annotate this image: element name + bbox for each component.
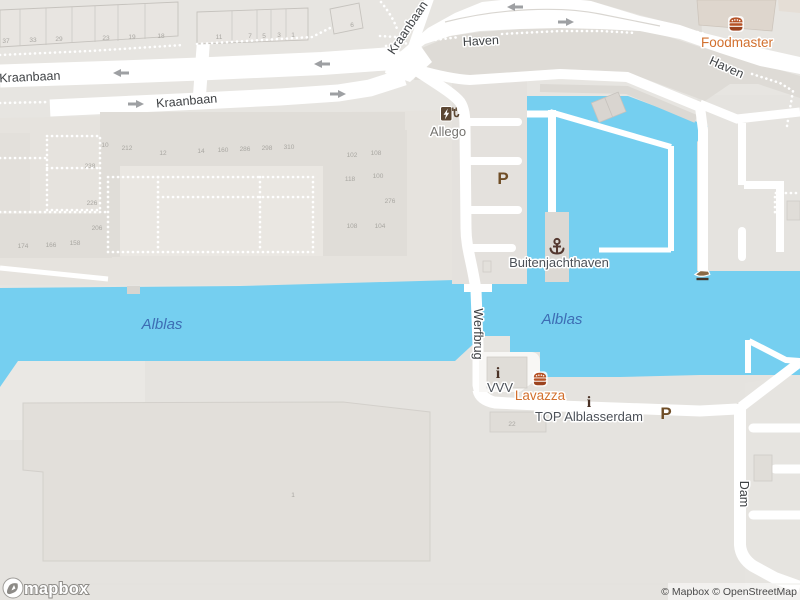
svg-text:206: 206 xyxy=(92,225,103,232)
svg-text:1: 1 xyxy=(291,492,295,499)
svg-text:37: 37 xyxy=(2,38,10,45)
svg-text:108: 108 xyxy=(371,150,382,157)
svg-text:12: 12 xyxy=(159,150,167,157)
svg-text:226: 226 xyxy=(87,200,98,207)
svg-text:160: 160 xyxy=(218,147,229,154)
svg-text:Allego: Allego xyxy=(430,124,466,139)
svg-text:Lavazza: Lavazza xyxy=(515,388,566,403)
svg-text:3: 3 xyxy=(277,32,281,39)
svg-text:29: 29 xyxy=(55,36,63,43)
svg-text:6: 6 xyxy=(350,22,354,29)
svg-text:22: 22 xyxy=(508,421,516,428)
svg-text:14: 14 xyxy=(197,148,205,155)
svg-text:298: 298 xyxy=(262,145,273,152)
svg-text:100: 100 xyxy=(373,173,384,180)
svg-text:166: 166 xyxy=(46,242,57,249)
svg-text:Alblas: Alblas xyxy=(141,316,183,333)
svg-text:102: 102 xyxy=(347,152,358,159)
svg-text:23: 23 xyxy=(102,35,110,42)
svg-text:© Mapbox © OpenStreetMap: © Mapbox © OpenStreetMap xyxy=(661,586,797,598)
svg-text:5: 5 xyxy=(262,33,266,40)
svg-text:18: 18 xyxy=(157,33,165,40)
svg-text:Alblas: Alblas xyxy=(541,311,583,328)
svg-text:10: 10 xyxy=(101,142,109,149)
svg-text:TOP Alblasserdam: TOP Alblasserdam xyxy=(535,409,643,424)
svg-text:VVV: VVV xyxy=(487,380,513,395)
svg-text:Haven: Haven xyxy=(462,33,499,49)
svg-text:Foodmaster: Foodmaster xyxy=(701,35,774,50)
svg-text:Kraanbaan: Kraanbaan xyxy=(0,69,61,86)
svg-text:P: P xyxy=(660,404,671,423)
svg-text:276: 276 xyxy=(385,198,396,205)
svg-text:212: 212 xyxy=(122,145,133,152)
svg-text:19: 19 xyxy=(128,34,136,41)
svg-text:Buitenjachthaven: Buitenjachthaven xyxy=(509,255,609,270)
svg-text:158: 158 xyxy=(70,240,81,247)
svg-text:108: 108 xyxy=(347,223,358,230)
svg-text:174: 174 xyxy=(18,243,29,250)
svg-text:P: P xyxy=(497,169,508,188)
svg-text:33: 33 xyxy=(29,37,37,44)
svg-text:7: 7 xyxy=(248,33,252,40)
svg-text:Dam: Dam xyxy=(737,481,751,507)
svg-text:mapbox: mapbox xyxy=(24,580,89,598)
svg-text:11: 11 xyxy=(216,34,223,41)
svg-text:104: 104 xyxy=(375,223,386,230)
svg-text:286: 286 xyxy=(240,146,251,153)
svg-text:118: 118 xyxy=(345,176,356,183)
svg-text:310: 310 xyxy=(284,144,295,151)
svg-text:Werfbrug: Werfbrug xyxy=(471,308,485,359)
